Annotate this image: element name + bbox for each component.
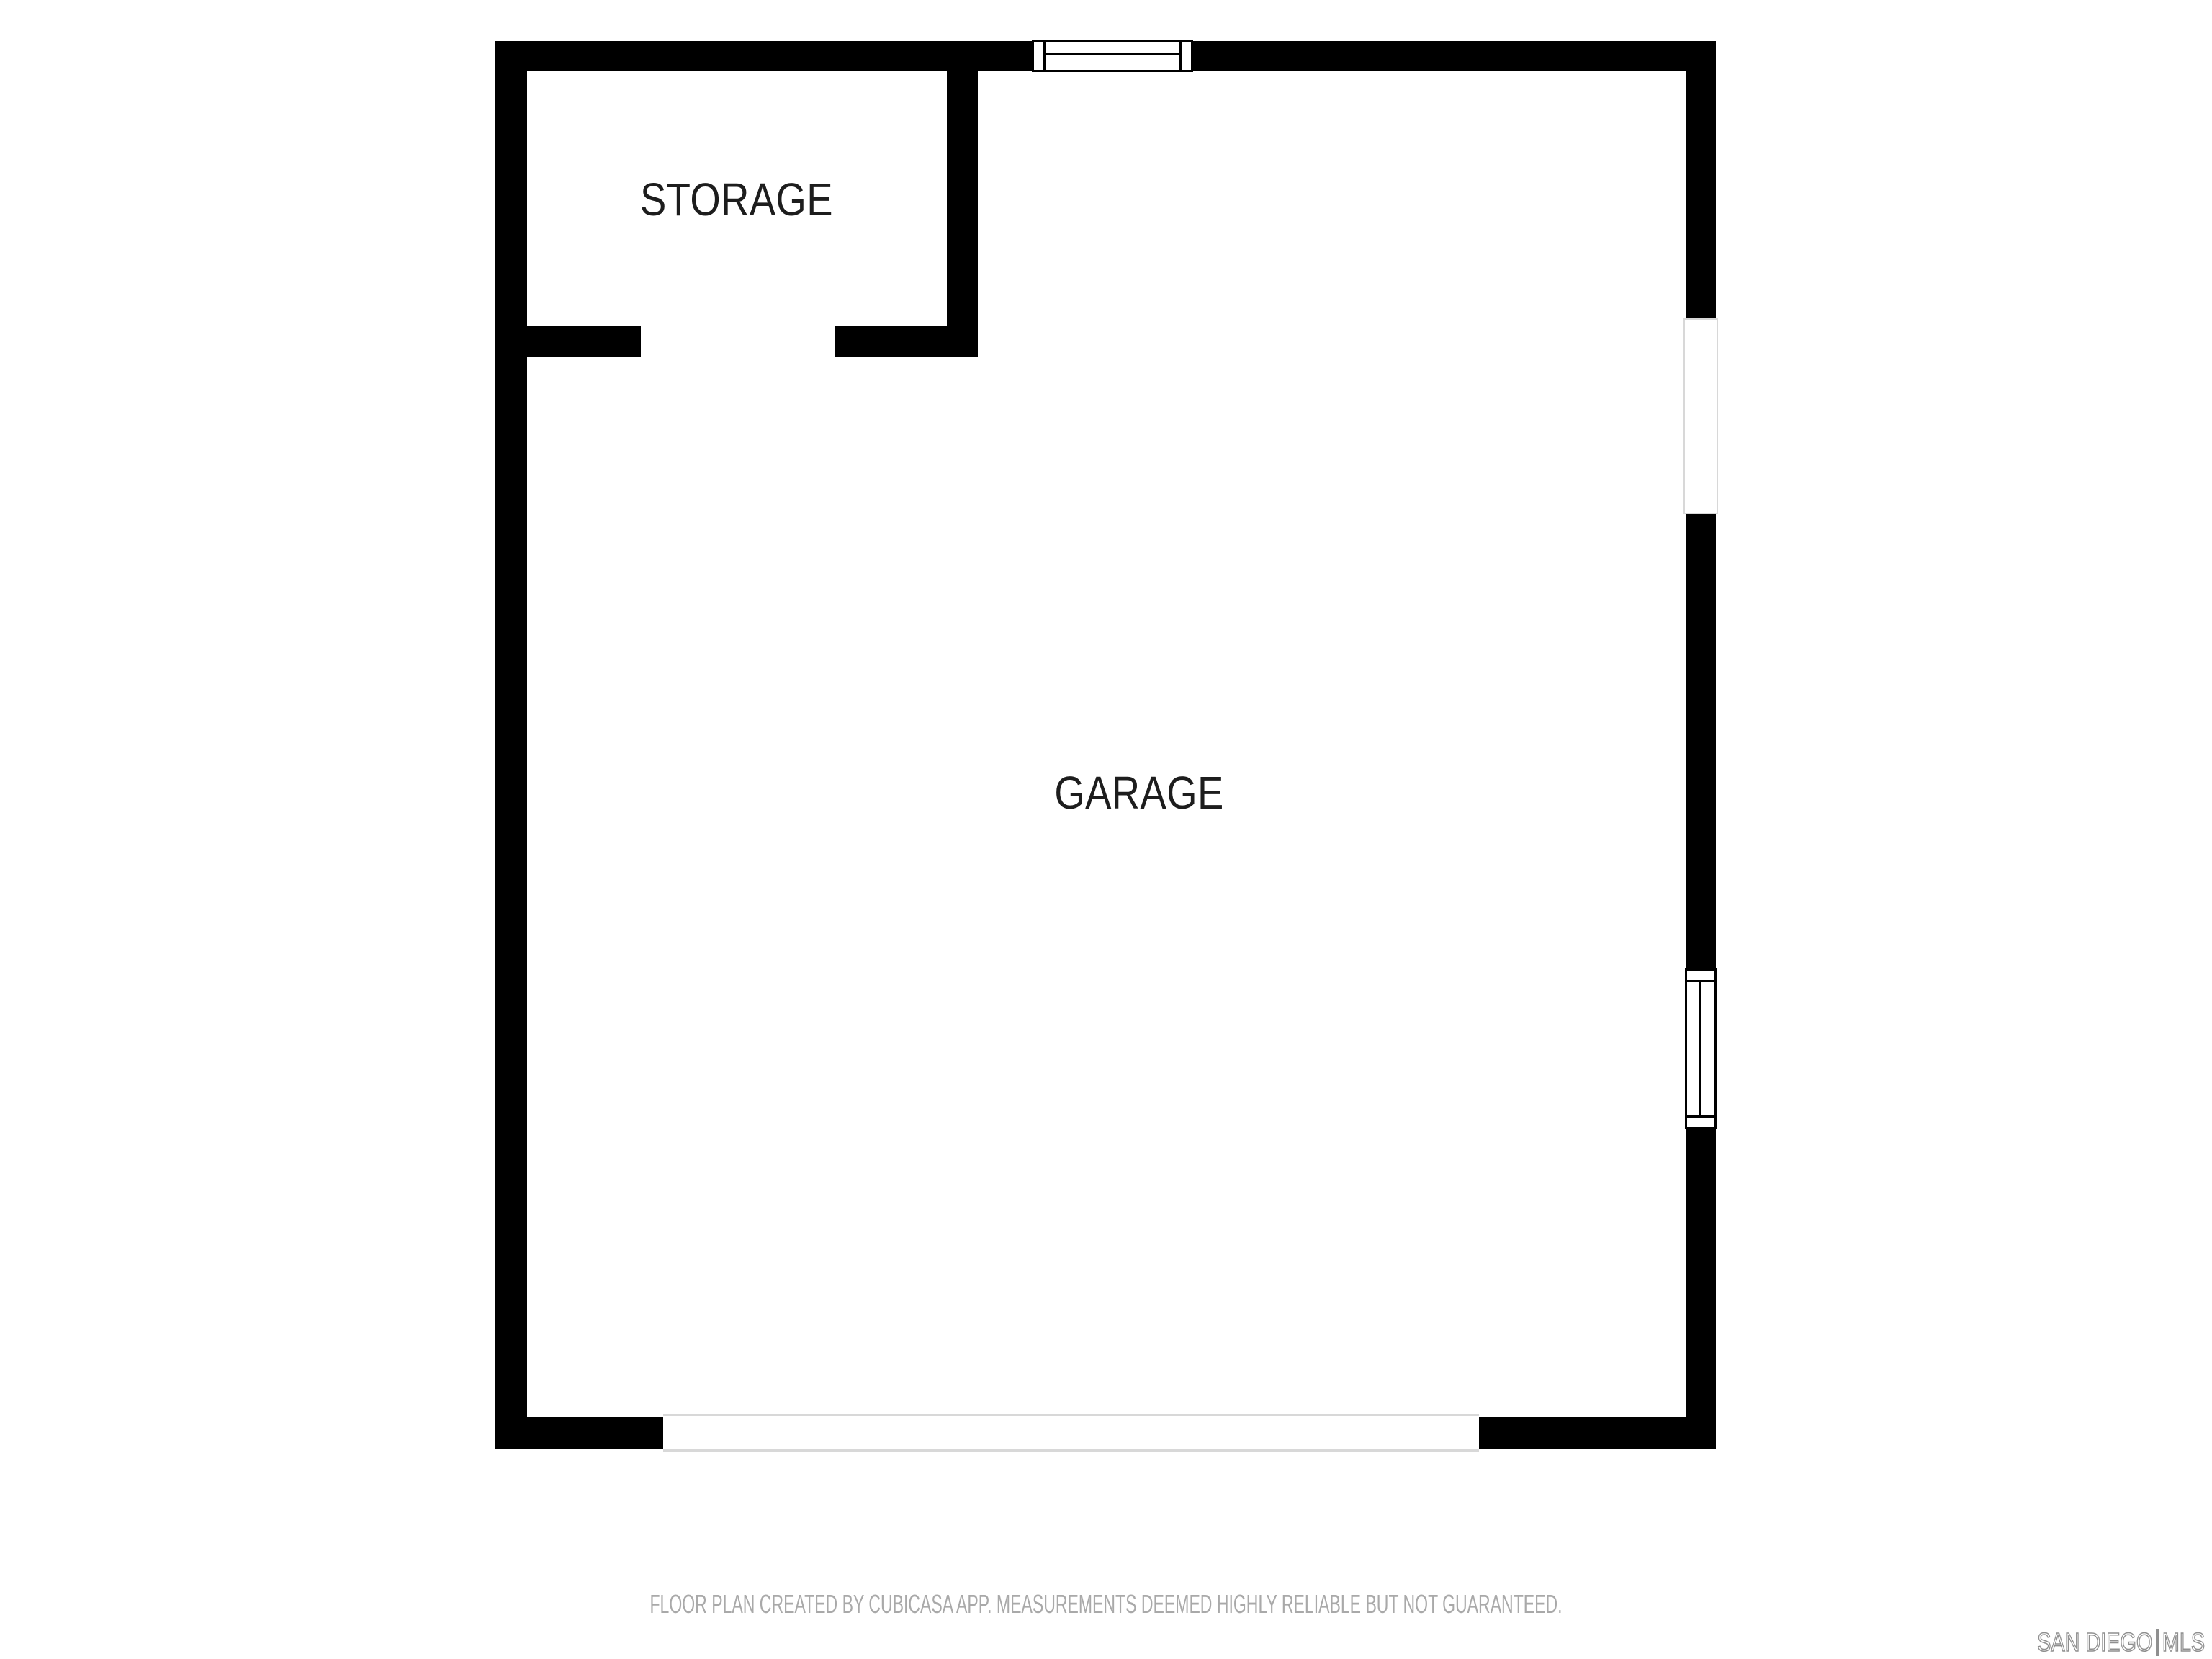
window-top-icon <box>1032 40 1193 72</box>
disclaimer-text: FLOOR PLAN CREATED BY CUBICASA APP. MEAS… <box>398 1588 1814 1619</box>
watermark-text-right: MLS <box>2162 1627 2205 1657</box>
wall-left <box>495 41 527 1449</box>
window-divider <box>1179 42 1182 70</box>
room-label-storage: STORAGE <box>614 173 859 226</box>
garage-door-opening <box>663 1414 1479 1452</box>
storage-wall-right <box>947 41 978 357</box>
window-midline <box>1046 53 1179 55</box>
window-divider <box>1687 1115 1714 1118</box>
storage-wall-bottom-left <box>527 326 641 357</box>
window-midline <box>1699 982 1701 1115</box>
watermark-divider-icon <box>2156 1629 2159 1656</box>
window-divider <box>1043 42 1046 70</box>
doorway-right-opening <box>1683 318 1718 514</box>
watermark: SAN DIEGOMLS <box>2037 1628 2205 1657</box>
room-label-garage: GARAGE <box>1017 766 1262 819</box>
wall-right <box>1686 41 1716 1449</box>
watermark-text-left: SAN DIEGO <box>2037 1627 2152 1657</box>
floorplan-canvas: STORAGE GARAGE FLOOR PLAN CREATED BY CUB… <box>0 0 2212 1659</box>
storage-wall-bottom-right <box>835 326 978 357</box>
window-right-icon <box>1685 968 1717 1129</box>
